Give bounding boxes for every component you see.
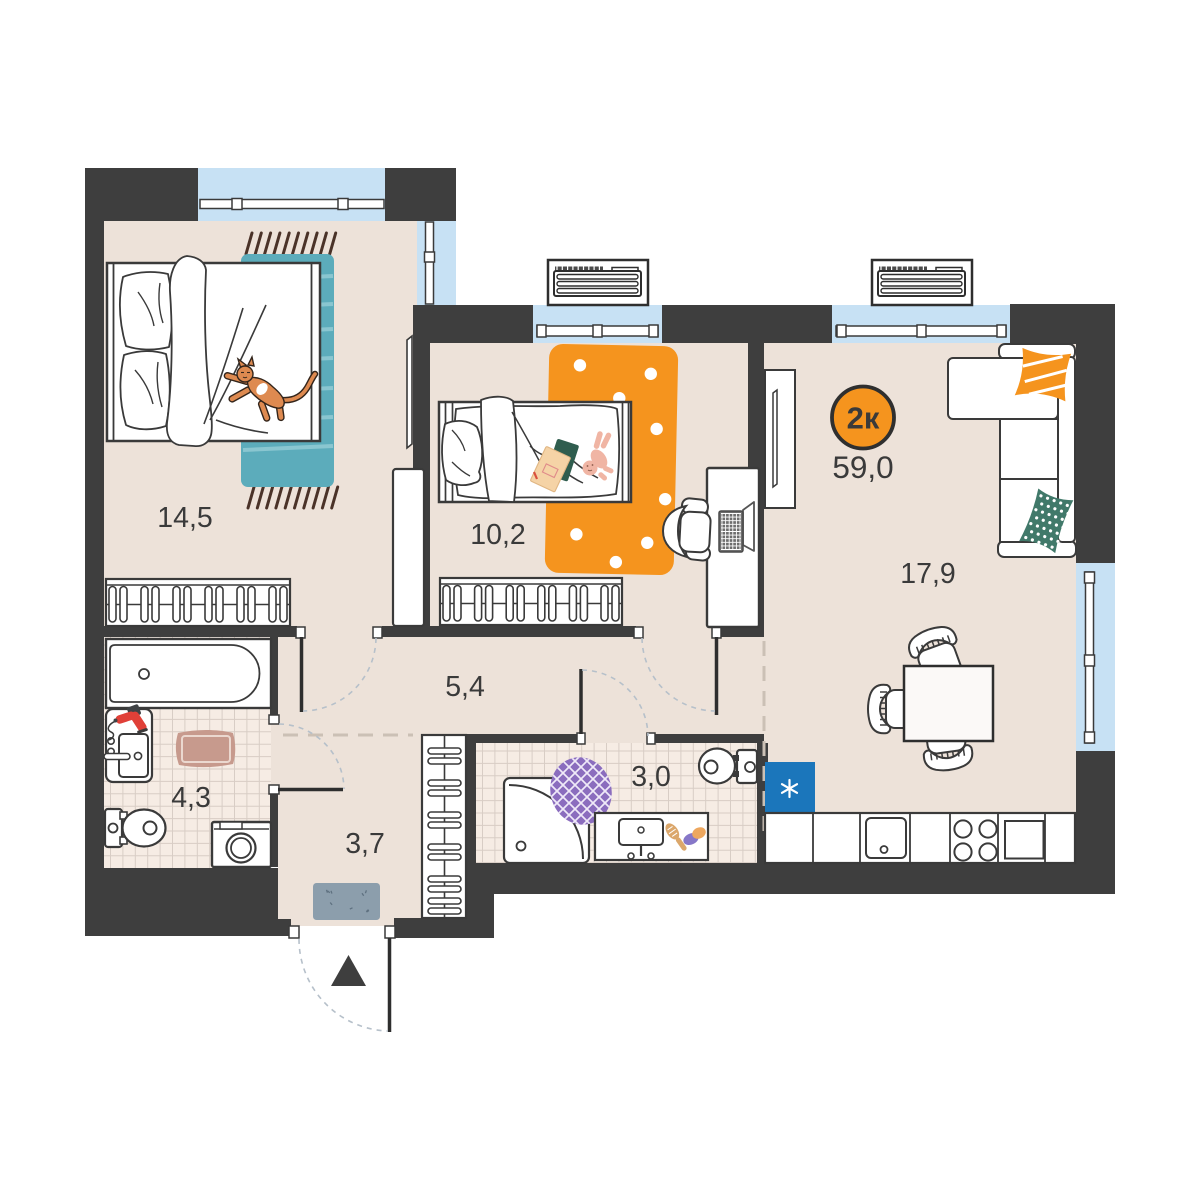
svg-text:14,5: 14,5 (157, 502, 212, 534)
svg-text:2к: 2к (847, 401, 880, 436)
svg-text:17,9: 17,9 (900, 558, 955, 590)
svg-text:3,7: 3,7 (345, 828, 385, 860)
svg-text:10,2: 10,2 (470, 519, 525, 551)
svg-text:3,0: 3,0 (631, 761, 671, 793)
svg-text:4,3: 4,3 (171, 782, 211, 814)
svg-text:59,0: 59,0 (832, 449, 893, 485)
svg-text:5,4: 5,4 (445, 671, 485, 703)
